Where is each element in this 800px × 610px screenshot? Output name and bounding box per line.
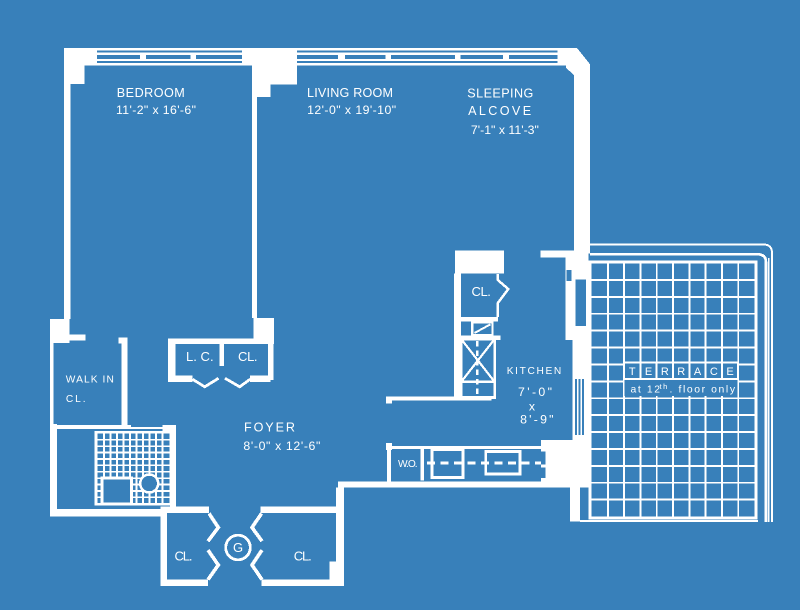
- svg-text:at 12: at 12: [631, 385, 662, 396]
- svg-text:R: R: [661, 366, 669, 378]
- svg-text:SLEEPING: SLEEPING: [467, 87, 533, 101]
- svg-text:11'-2" x 16'-6": 11'-2" x 16'-6": [116, 103, 196, 117]
- svg-text:CL.: CL.: [472, 284, 491, 299]
- svg-text:G: G: [233, 540, 243, 555]
- svg-text:CL.: CL.: [238, 349, 257, 364]
- svg-text:LIVING ROOM: LIVING ROOM: [307, 86, 393, 100]
- svg-text:. floor only: . floor only: [670, 385, 737, 396]
- svg-text:C: C: [710, 366, 718, 378]
- svg-text:W.O.: W.O.: [398, 459, 418, 470]
- svg-text:E: E: [726, 366, 733, 378]
- svg-text:A: A: [694, 366, 702, 378]
- svg-text:KITCHEN: KITCHEN: [507, 366, 562, 377]
- svg-text:th: th: [660, 382, 669, 391]
- svg-text:L. C.: L. C.: [186, 349, 214, 364]
- svg-text:T: T: [629, 366, 636, 378]
- svg-text:12'-0" x 19'-10": 12'-0" x 19'-10": [307, 103, 396, 117]
- svg-text:E: E: [645, 366, 652, 378]
- svg-text:CL.: CL.: [294, 548, 312, 563]
- svg-text:R: R: [677, 366, 685, 378]
- svg-text:7'-1" x 11'-3": 7'-1" x 11'-3": [471, 123, 539, 137]
- svg-text:BEDROOM: BEDROOM: [117, 86, 185, 100]
- svg-text:7'-0": 7'-0": [518, 385, 552, 399]
- svg-text:CL.: CL.: [175, 548, 193, 563]
- svg-text:8'-9": 8'-9": [520, 412, 553, 426]
- svg-text:CL.: CL.: [66, 394, 86, 405]
- svg-text:WALK IN: WALK IN: [66, 374, 114, 385]
- svg-text:FOYER: FOYER: [244, 421, 295, 435]
- svg-text:8'-0" x 12'-6": 8'-0" x 12'-6": [243, 439, 320, 453]
